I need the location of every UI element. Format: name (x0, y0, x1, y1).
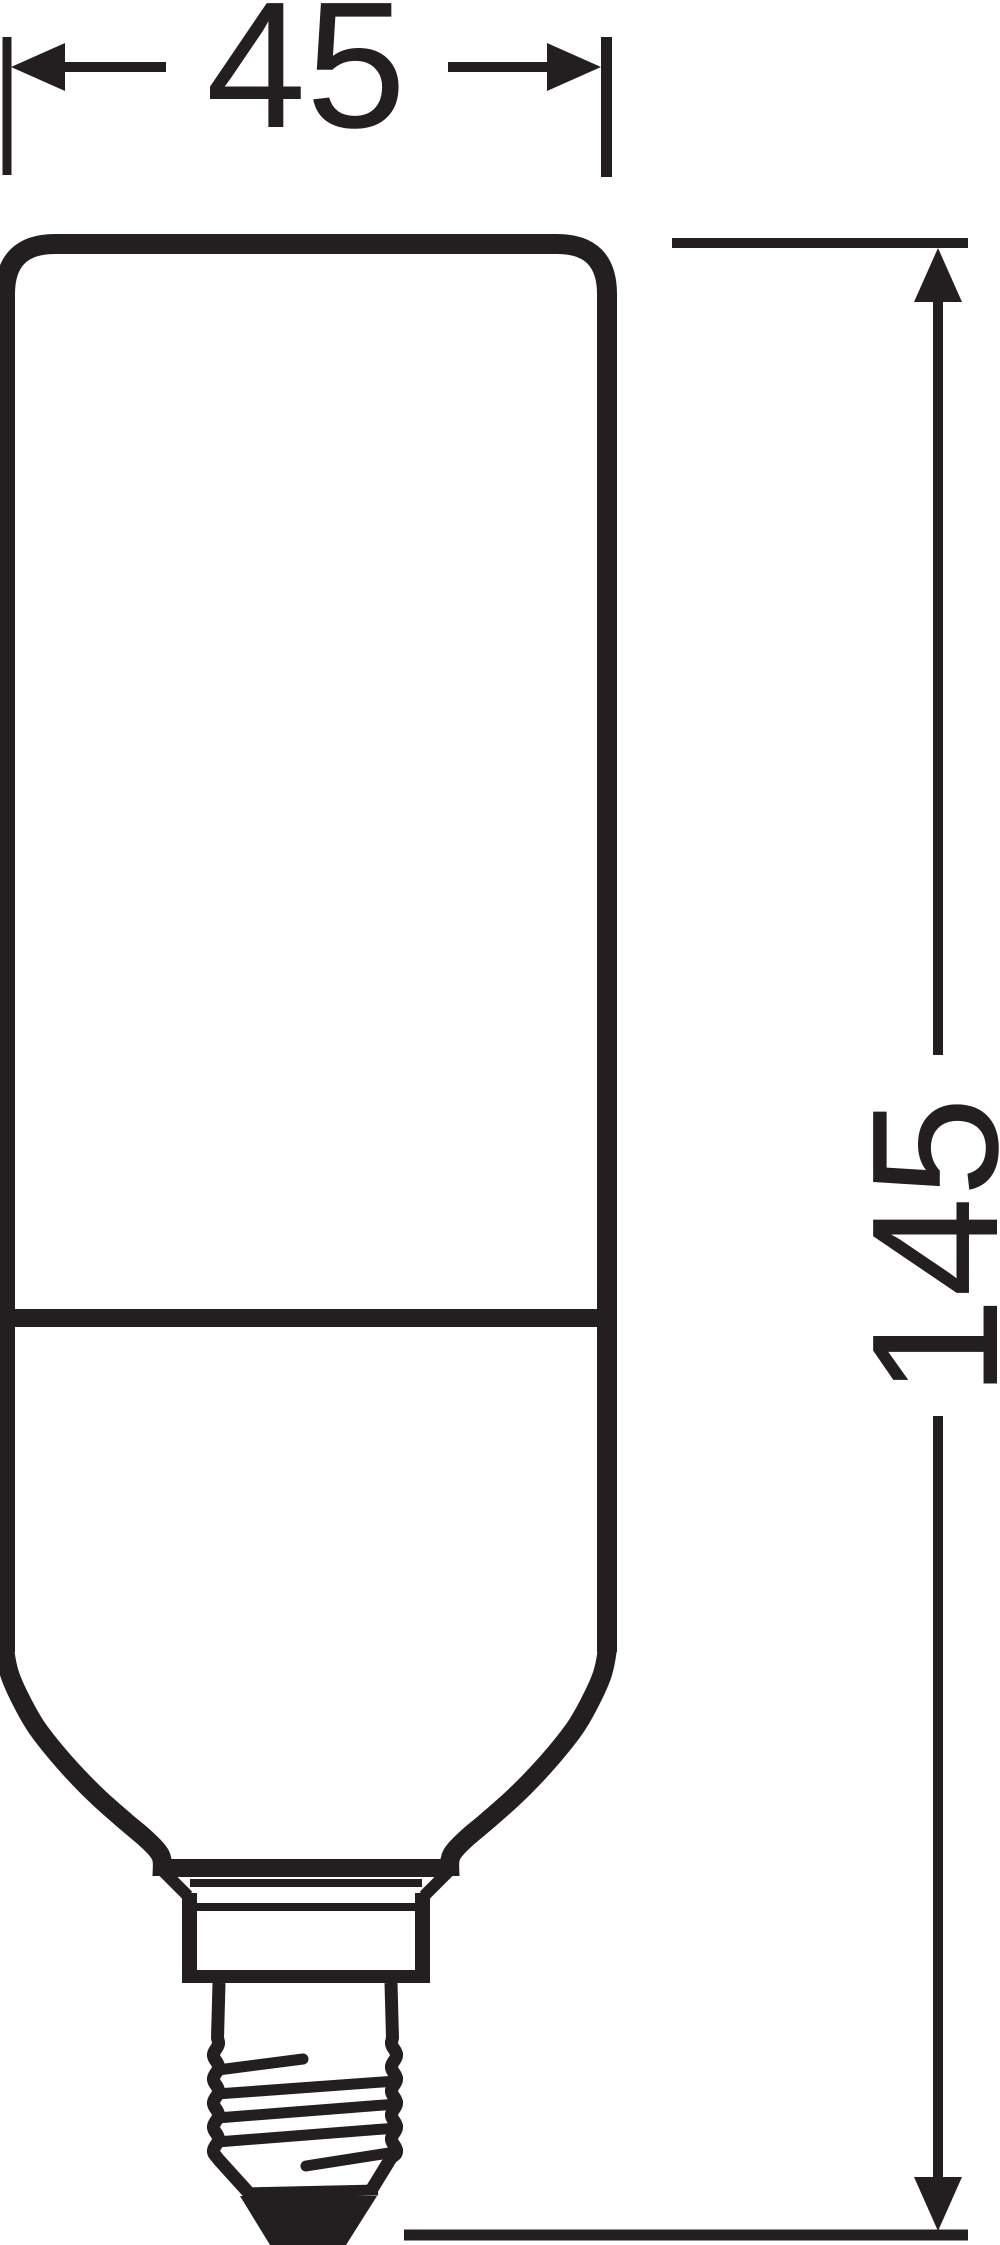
svg-text:145: 145 (835, 1097, 1000, 1397)
svg-text:45: 45 (206, 0, 406, 166)
